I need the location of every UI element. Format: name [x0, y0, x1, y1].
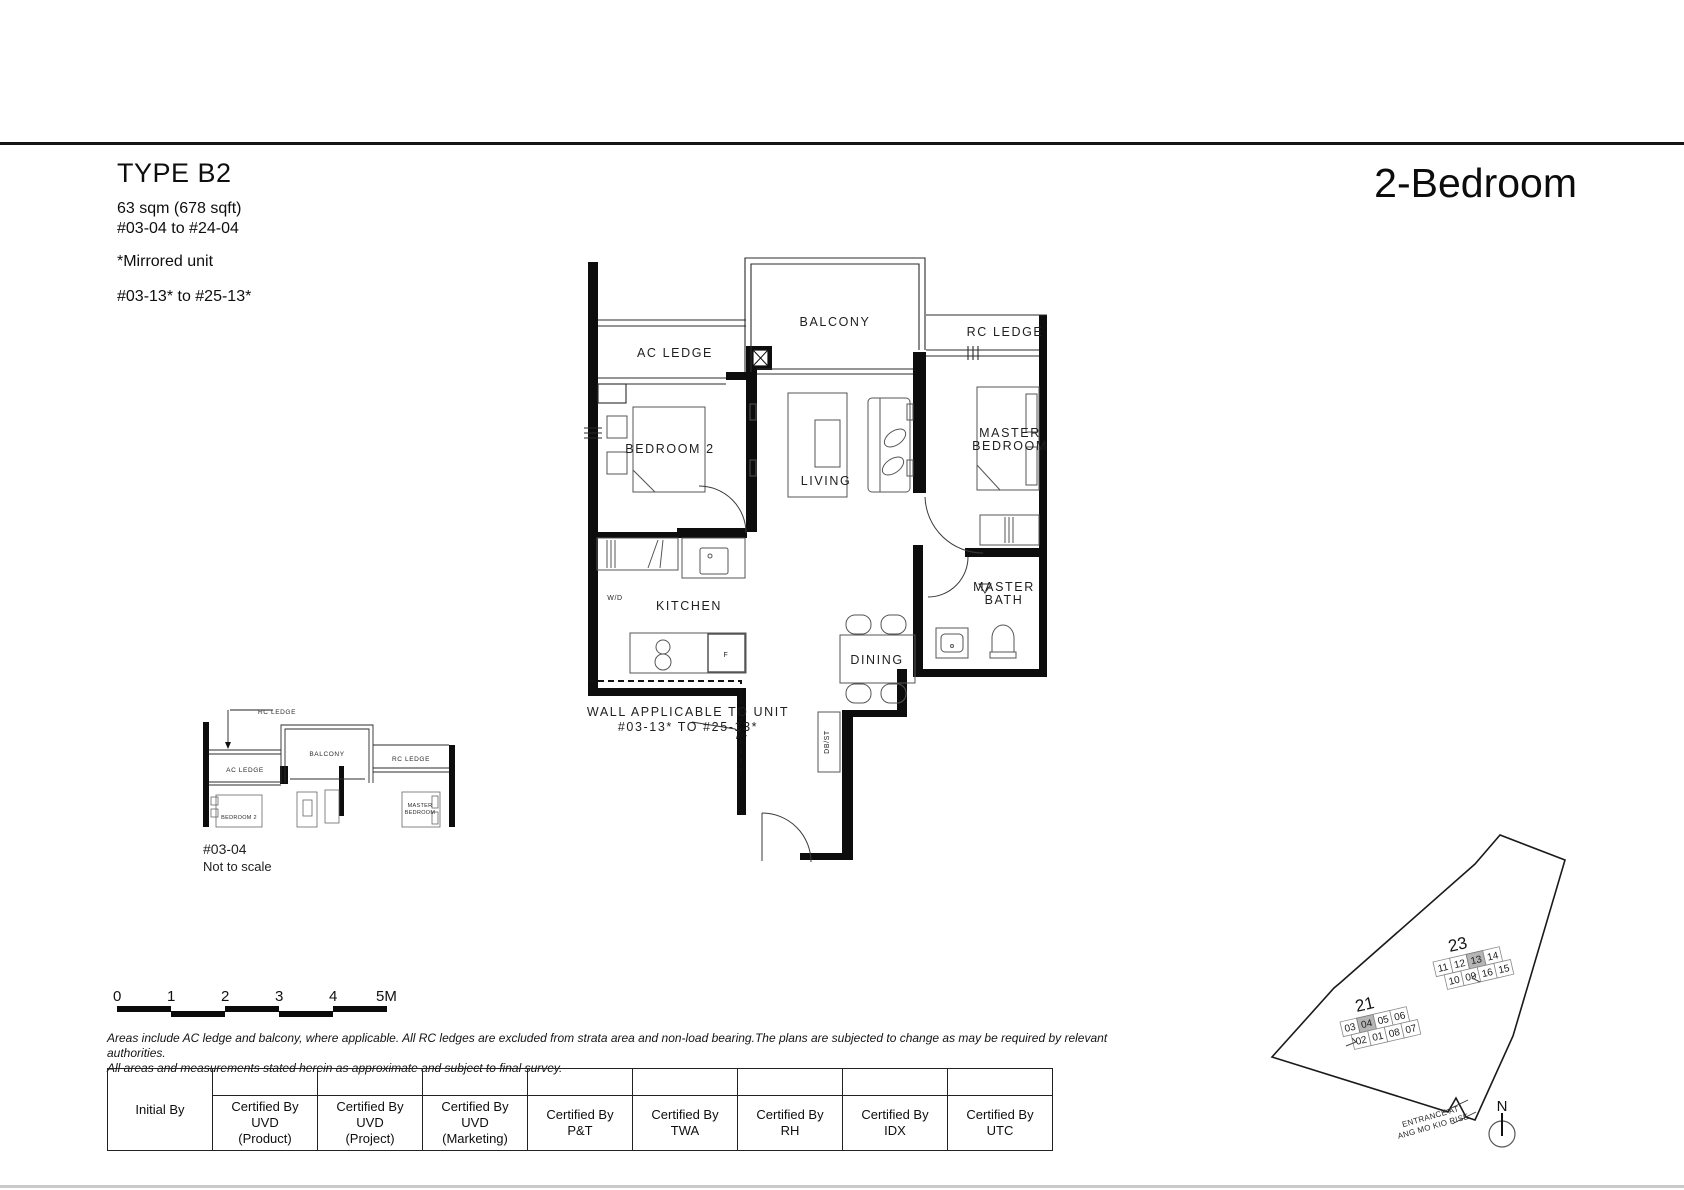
- toilet: [992, 625, 1014, 652]
- label-fridge: F: [724, 652, 729, 659]
- wall-note-line2: #03-13* TO #25-13*: [618, 720, 758, 734]
- scale-segment: [279, 1011, 333, 1017]
- main-floor-plan: BALCONY AC LEDGE RC LEDGE BEDROOM 2 LIVI…: [540, 240, 1060, 870]
- block-23-label: 23: [1446, 933, 1469, 956]
- label-master-bedroom: BEDROOM: [972, 439, 1048, 453]
- mini-label-master: BEDROOM: [405, 810, 436, 816]
- north-indicator: N: [1489, 1098, 1515, 1147]
- bedroom-category-title: 2-Bedroom: [1080, 160, 1577, 207]
- initial-by-cell: Initial By: [108, 1069, 213, 1151]
- label-kitchen: KITCHEN: [656, 599, 722, 613]
- sofa: [868, 398, 910, 492]
- table-row: Certified By UVD (Product) Certified By …: [108, 1096, 1053, 1151]
- mini-label-master: MASTER: [408, 803, 433, 809]
- label-rc-ledge: RC LEDGE: [967, 325, 1044, 339]
- scale-segment: [171, 1011, 225, 1017]
- mini-label-rc-ledge-callout: RC LEDGE: [258, 709, 296, 716]
- scale-tick: 5M: [376, 988, 397, 1005]
- table-empty-cell: [843, 1069, 948, 1096]
- header-divider-line: [0, 142, 1684, 145]
- mini-plan-scale-note: Not to scale: [203, 859, 272, 874]
- label-living: LIVING: [801, 474, 852, 488]
- table-empty-cell: [213, 1069, 318, 1096]
- mini-plan-unit-number: #03-04: [203, 841, 247, 857]
- ac-shaft-box: [753, 350, 768, 366]
- table-row: Initial By: [108, 1069, 1053, 1096]
- scale-tick: 4: [329, 988, 337, 1005]
- kitchen-sink: [700, 548, 728, 574]
- scale-tick: 1: [167, 988, 175, 1005]
- mirrored-stack-range: #03-13* to #25-13*: [117, 288, 251, 306]
- stove-burner: [655, 654, 671, 670]
- label-ac-ledge: AC LEDGE: [637, 346, 713, 360]
- label-master-bath: MASTER: [973, 580, 1035, 594]
- mini-label-bedroom2: BEDROOM 2: [221, 815, 257, 821]
- site-boundary: [1272, 835, 1565, 1120]
- table-empty-cell: [318, 1069, 423, 1096]
- scale-segment: [117, 1006, 171, 1012]
- label-dbst: DB/ST: [824, 730, 831, 754]
- table-empty-cell: [948, 1069, 1053, 1096]
- label-master-bedroom: MASTER: [979, 426, 1041, 440]
- scale-tick: 0: [113, 988, 121, 1005]
- site-block-21: 21 03 04 05 06 02 01 08 07: [1335, 984, 1421, 1051]
- label-master-bath: BATH: [985, 593, 1024, 607]
- unit-stack-range: #03-04 to #24-04: [117, 219, 242, 239]
- unit-area: 63 sqm (678 sqft): [117, 199, 242, 219]
- north-label: N: [1497, 1098, 1508, 1115]
- mirrored-unit-note: *Mirrored unit: [117, 253, 213, 271]
- certified-by-cell: Certified By P&T: [528, 1096, 633, 1151]
- scale-tick: 3: [275, 988, 283, 1005]
- scale-segment: [225, 1006, 279, 1012]
- stove-burner: [656, 640, 670, 654]
- disclaimer-line1: Areas include AC ledge and balcony, wher…: [107, 1031, 1167, 1061]
- certified-by-cell: Certified By UVD (Marketing): [423, 1096, 528, 1151]
- block-21-label: 21: [1353, 993, 1376, 1016]
- label-wd: W/D: [607, 595, 622, 602]
- scale-segment: [333, 1006, 387, 1012]
- mini-label-rc-ledge: RC LEDGE: [392, 756, 430, 763]
- certification-table: Initial By Certified By UVD (Product) Ce…: [107, 1068, 1053, 1151]
- label-dining: DINING: [850, 653, 903, 667]
- wall-note-line1: WALL APPLICABLE TO UNIT: [587, 705, 789, 719]
- table-empty-cell: [423, 1069, 528, 1096]
- entrance-annotation: ENTRANCE AT ANG MO KIO RISE: [1394, 1102, 1470, 1141]
- certified-by-cell: Certified By UVD (Project): [318, 1096, 423, 1151]
- mini-label-balcony: BALCONY: [309, 751, 344, 758]
- certified-by-cell: Certified By TWA: [633, 1096, 738, 1151]
- mini-label-ac-ledge: AC LEDGE: [226, 767, 264, 774]
- table-empty-cell: [633, 1069, 738, 1096]
- mini-key-plan: RC LEDGE BALCONY AC LEDGE RC LEDGE BEDRO…: [180, 695, 470, 835]
- table-empty-cell: [738, 1069, 843, 1096]
- certified-by-cell: Certified By IDX: [843, 1096, 948, 1151]
- unit-type-title: TYPE B2: [117, 158, 232, 189]
- table-empty-cell: [528, 1069, 633, 1096]
- site-block-23: 23 11 12 13 14 10 09 16 15: [1428, 924, 1514, 991]
- mini-furniture: [211, 790, 440, 827]
- site-key-plan: 23 11 12 13 14 10 09 16 15 21 03 04 05 0…: [1180, 800, 1600, 1170]
- label-balcony: BALCONY: [800, 315, 871, 329]
- unit-area-and-stack: 63 sqm (678 sqft) #03-04 to #24-04: [117, 199, 242, 239]
- certified-by-cell: Certified By UVD (Product): [213, 1096, 318, 1151]
- certified-by-cell: Certified By UTC: [948, 1096, 1053, 1151]
- scale-tick: 2: [221, 988, 229, 1005]
- footer-divider-line: [0, 1185, 1684, 1188]
- certified-by-cell: Certified By RH: [738, 1096, 843, 1151]
- label-bedroom2: BEDROOM 2: [625, 442, 714, 456]
- scale-bar: 0 1 2 3 4 5M: [110, 988, 410, 1022]
